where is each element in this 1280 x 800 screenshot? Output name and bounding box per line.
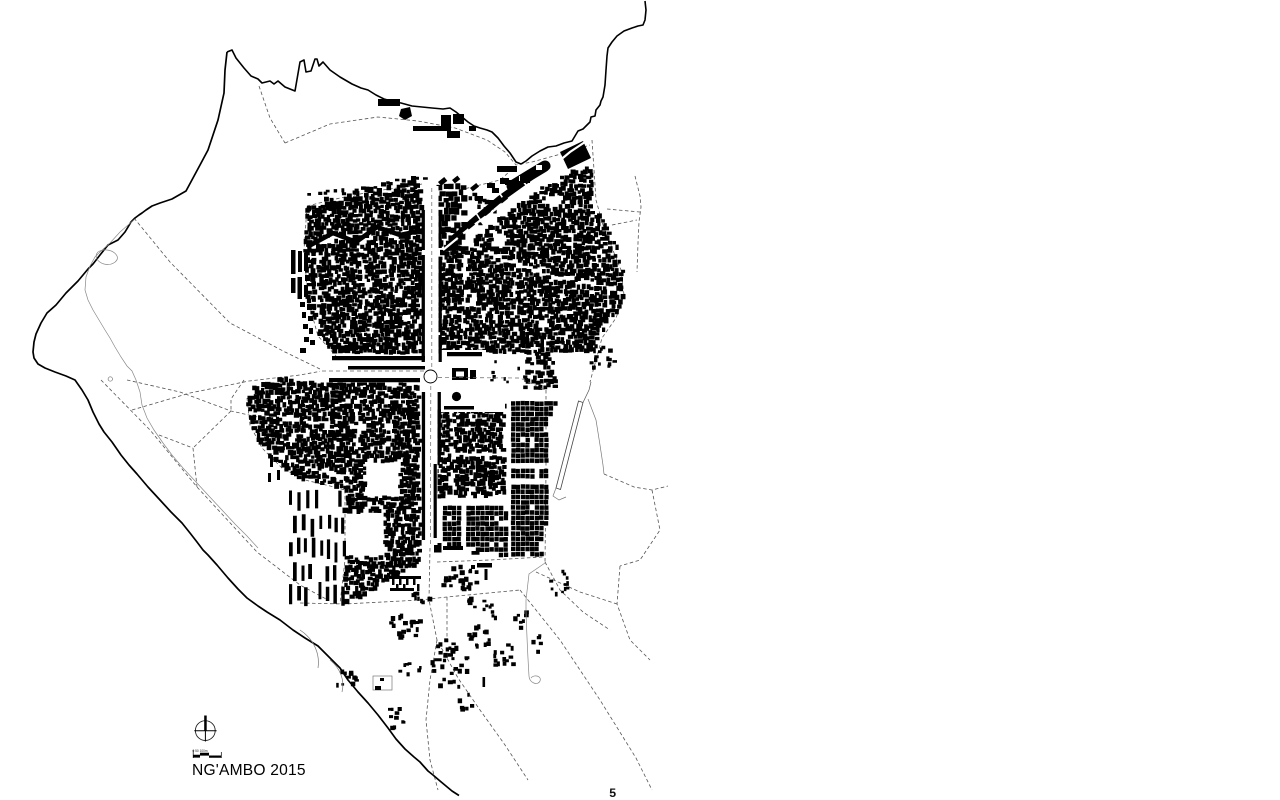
svg-text:5: 5 bbox=[609, 786, 616, 800]
svg-text:NG'AMBO 2015: NG'AMBO 2015 bbox=[192, 762, 306, 779]
svg-text:0 50 100m: 0 50 100m bbox=[193, 749, 208, 753]
